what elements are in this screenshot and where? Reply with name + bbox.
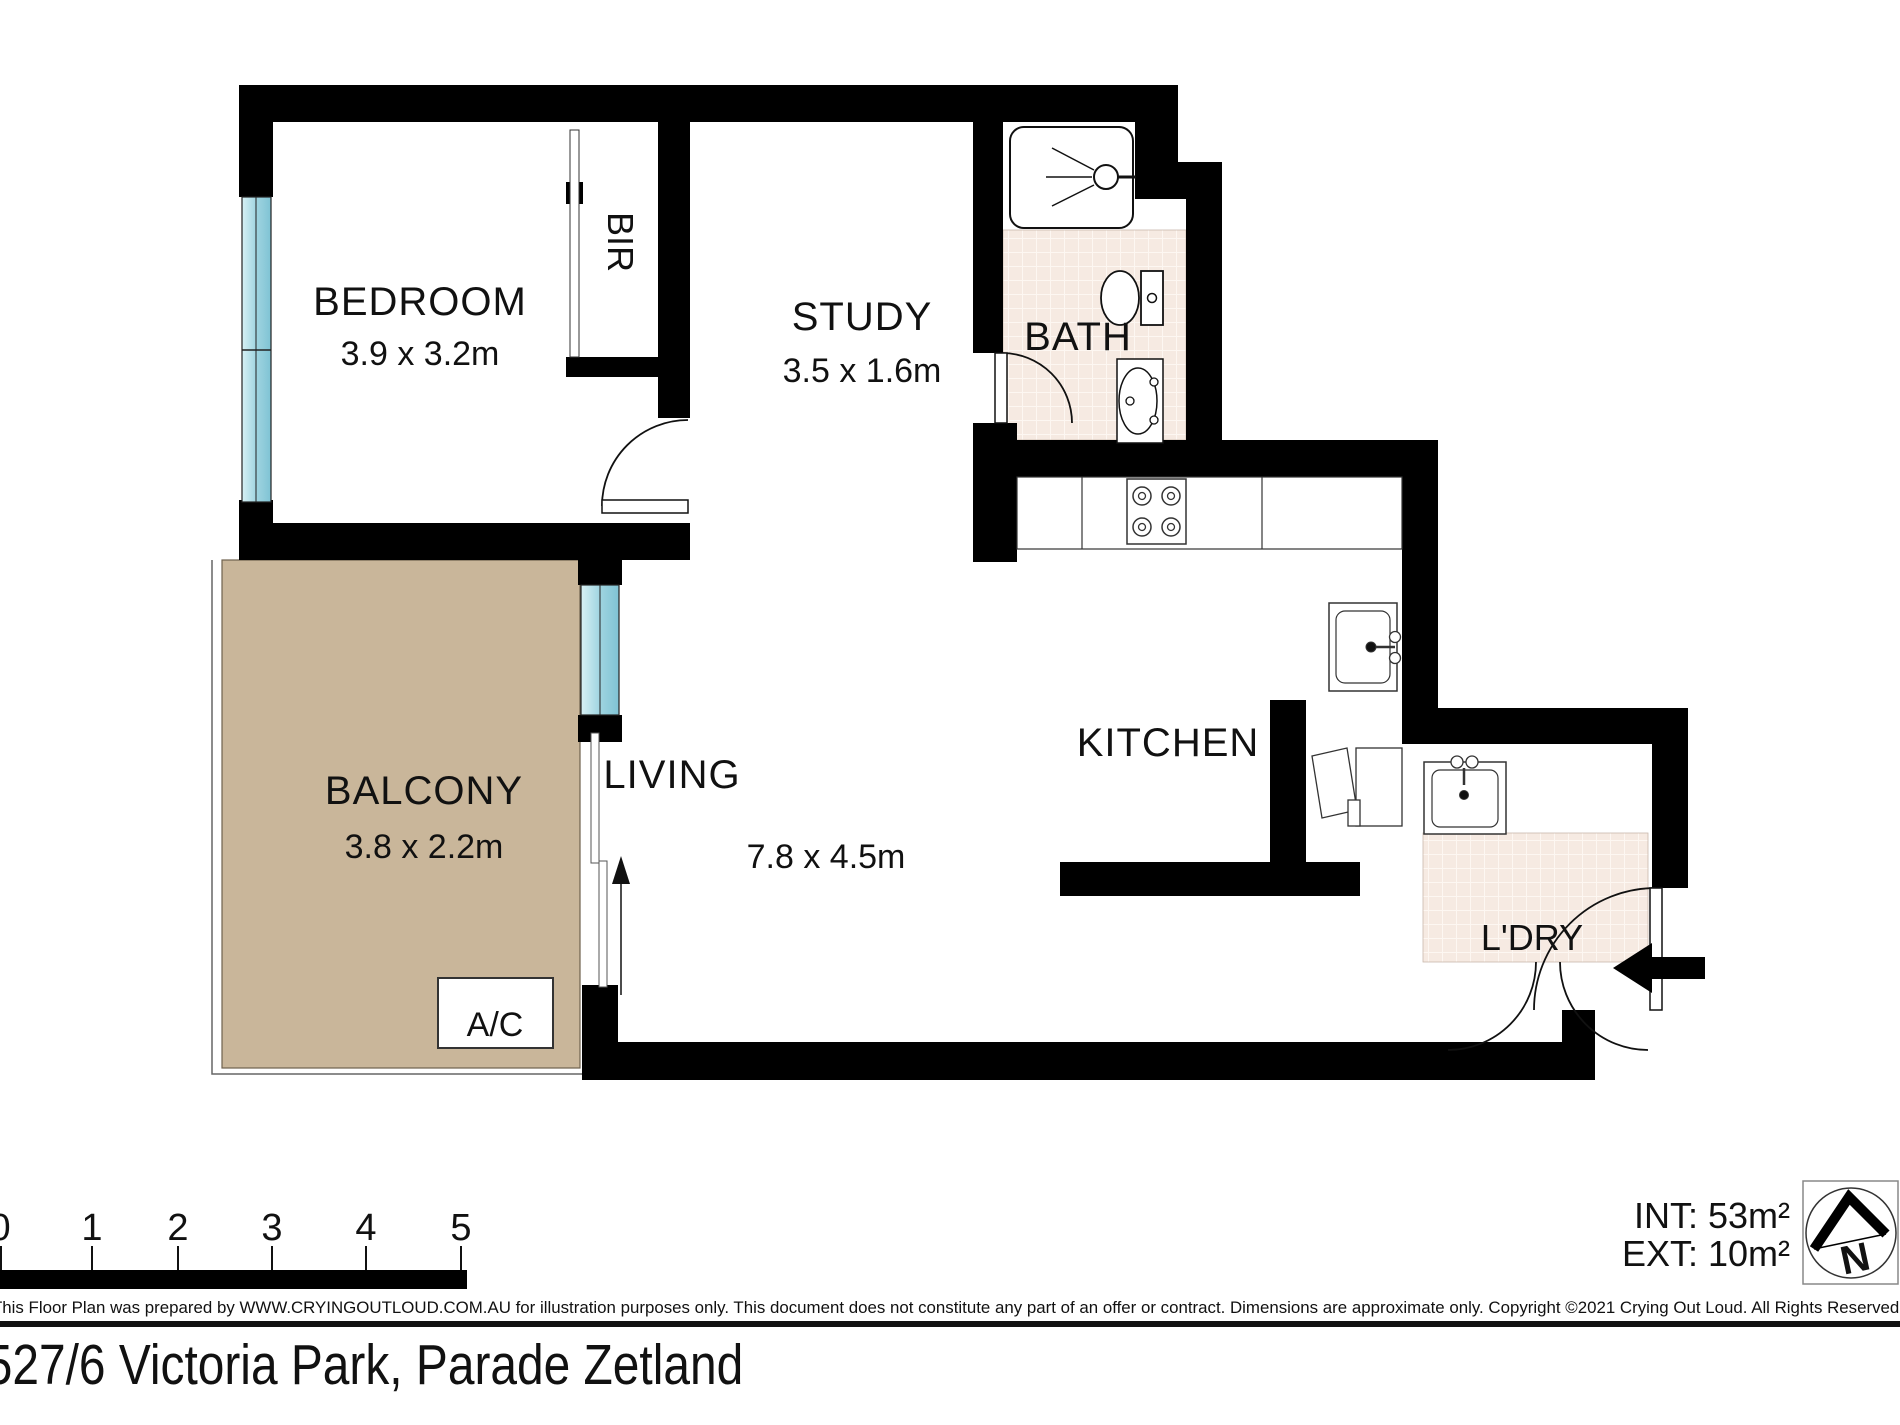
scale-num-0: 0 (0, 1207, 11, 1249)
laundry-tap-2 (1466, 756, 1478, 768)
room-label-bedroom: BEDROOM (313, 280, 527, 324)
scale-num-2: 2 (167, 1207, 188, 1249)
burner-3-inner (1139, 524, 1146, 531)
wall-bath-west (973, 122, 1003, 353)
vanity-basin (1119, 368, 1157, 434)
scale-num-5: 5 (450, 1207, 471, 1249)
room-dims-balcony: 3.8 x 2.2m (345, 828, 504, 866)
laundry-tap-1 (1451, 756, 1463, 768)
vanity-tap-2 (1150, 416, 1158, 424)
bedroom-door-leaf (602, 500, 688, 513)
wall-bottom (618, 1042, 1562, 1080)
room-label-kitchen: KITCHEN (1077, 721, 1260, 765)
wall-top (239, 85, 1178, 122)
laundry-tub-drain (1460, 791, 1469, 800)
bath-door-leaf (995, 353, 1007, 423)
room-label-balcony: BALCONY (325, 769, 523, 813)
room-label-bath: BATH (1024, 315, 1132, 359)
toilet-button (1148, 294, 1157, 303)
wall-entry-stub (1562, 1010, 1595, 1080)
appliance-unit-corner (1348, 800, 1360, 826)
area-internal: INT: 53m² (1634, 1195, 1790, 1236)
room-dims-bedroom: 3.9 x 3.2m (341, 335, 500, 373)
page-title-address: 527/6 Victoria Park, Parade Zetland (0, 1333, 743, 1397)
floor-plan-page: BEDROOM 3.9 x 3.2m BIR STUDY 3.5 x 1.6m … (0, 0, 1900, 1425)
room-label-laundry: L'DRY (1481, 917, 1583, 958)
kitchen-tap-2 (1390, 653, 1401, 664)
wall-east-exterior (1652, 708, 1688, 888)
appliance-unit (1356, 748, 1402, 826)
room-label-living: LIVING (603, 753, 740, 797)
footer-rule (0, 1321, 1900, 1327)
kitchen-counter (1017, 477, 1402, 549)
bir-door-panel (570, 130, 579, 357)
scale-num-1: 1 (81, 1207, 102, 1249)
sliding-door-track-2 (599, 861, 607, 987)
wall-bath-east (1186, 162, 1222, 477)
wall-left-upper (239, 122, 273, 197)
vanity-drain (1126, 397, 1134, 405)
room-dims-living: 7.8 x 4.5m (747, 838, 906, 876)
vanity-tap-1 (1150, 378, 1158, 386)
wall-window-sill (578, 715, 622, 742)
kitchen-tap-1 (1390, 632, 1401, 643)
area-external: EXT: 10m² (1622, 1233, 1790, 1274)
wall-bir-bottom (566, 357, 690, 377)
label-ac: A/C (467, 1006, 524, 1044)
wall-bedroom-south (239, 523, 690, 560)
room-label-study: STUDY (792, 295, 933, 339)
wall-nook-west (1270, 700, 1306, 862)
shower-drain-icon (1094, 165, 1118, 189)
burner-2-inner (1168, 493, 1175, 500)
scale-num-3: 3 (261, 1207, 282, 1249)
address-group: 527/6 Victoria Park, Parade Zetland (0, 1333, 743, 1397)
wall-kitchen-south (1060, 862, 1360, 896)
scale-bar-rule (0, 1270, 467, 1289)
burner-4-inner (1168, 524, 1175, 531)
wall-window-header (578, 560, 622, 585)
room-label-bir: BIR (600, 212, 641, 272)
floor-plan-canvas: BEDROOM 3.9 x 3.2m BIR STUDY 3.5 x 1.6m … (0, 0, 1900, 1425)
sliding-door-track-1 (591, 733, 599, 863)
scale-num-4: 4 (355, 1207, 376, 1249)
wall-laundry-north (1402, 708, 1688, 744)
laundry-fixtures (1424, 756, 1506, 834)
wall-kitchen-east (1402, 440, 1438, 722)
kitchen-sink-drain (1366, 642, 1376, 652)
disclaimer-text: This Floor Plan was prepared by WWW.CRYI… (0, 1299, 1900, 1317)
north-compass: N (1803, 1181, 1898, 1284)
room-dims-study: 3.5 x 1.6m (783, 352, 942, 390)
burner-1-inner (1139, 493, 1146, 500)
wall-sw-corner (582, 985, 618, 1080)
